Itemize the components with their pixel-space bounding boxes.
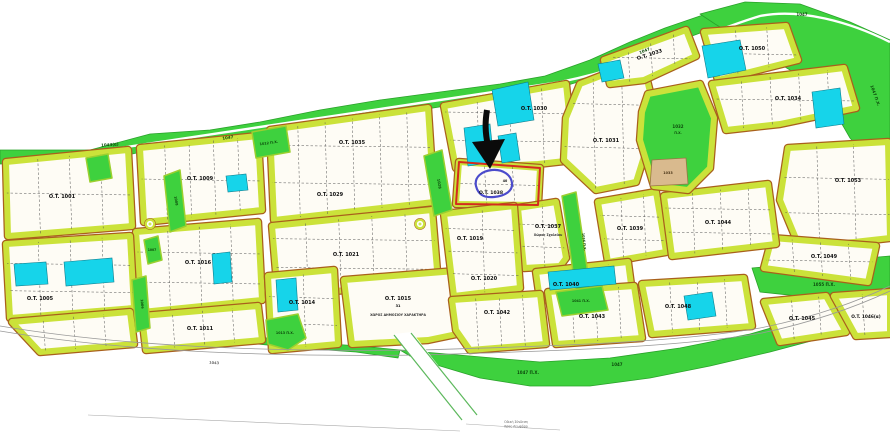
cyan-parcel bbox=[14, 262, 48, 286]
access-road-edge bbox=[394, 335, 462, 420]
map-label: 1033 bbox=[663, 171, 673, 175]
map-label: O.T. 1009 bbox=[187, 176, 214, 182]
map-label: 31 bbox=[396, 304, 401, 308]
map-label: O.T. 1050 bbox=[739, 46, 766, 52]
map-block-b-1019 bbox=[444, 206, 520, 296]
map-label: O.T. 1040 bbox=[553, 282, 580, 288]
map-label: 1047 Π.Χ. bbox=[517, 370, 539, 375]
map-label: O.T. 1042 bbox=[484, 310, 511, 316]
map-label: 1007 bbox=[148, 248, 157, 252]
cyan-parcel bbox=[498, 133, 520, 163]
map-label: O.T. 1048 bbox=[665, 304, 692, 310]
cyan-parcel bbox=[812, 88, 844, 128]
map-label: O.T. 1014 bbox=[289, 300, 316, 306]
map-block-b-row4 bbox=[12, 312, 134, 352]
map-label: 1041 Π.Χ. bbox=[572, 299, 590, 303]
map-label: 1013 Π.Χ. bbox=[276, 331, 294, 335]
map-label: O.T. 1043 bbox=[579, 314, 606, 320]
cyan-parcel bbox=[212, 252, 232, 284]
map-label: O.T. 1011 bbox=[187, 326, 214, 332]
map-label: O.T. 1001 bbox=[49, 194, 76, 200]
cadastral-map: O.T. 1001O.T. 1009O.T. 1035O.T. 1029O.T.… bbox=[0, 0, 890, 440]
map-label: Χώρος Σχολείου bbox=[534, 233, 563, 237]
map-label: O.T. 1046(α) bbox=[851, 314, 880, 320]
map-label: Π.Χ. bbox=[674, 131, 682, 135]
map-label: O.T. 1053 bbox=[835, 178, 862, 184]
cyan-parcel bbox=[64, 258, 114, 286]
map-label: 1047 bbox=[611, 362, 622, 367]
roundabout-center bbox=[149, 223, 152, 226]
map-label: O.T. 1030 bbox=[521, 106, 548, 112]
map-label: O.T. 1039 bbox=[617, 226, 644, 232]
map-label: O.T. 1037 bbox=[535, 224, 562, 230]
map-label: 1047 bbox=[796, 12, 807, 17]
map-label: O.T. 1045 bbox=[789, 316, 816, 322]
map-label: 40 bbox=[503, 179, 508, 183]
map-label: O.T. 1049 bbox=[811, 254, 838, 260]
map-label: 1055 Π.Χ. bbox=[813, 282, 835, 287]
map-label: O.T. 1016 bbox=[185, 260, 212, 266]
cyan-parcel bbox=[492, 82, 534, 126]
road-note: Οδική Σύνδεση bbox=[504, 420, 528, 424]
map-label: 1043 bbox=[209, 361, 220, 366]
roundabout-center bbox=[419, 223, 422, 226]
map-block-b-1053 bbox=[780, 142, 890, 248]
map-canvas: O.T. 1001O.T. 1009O.T. 1035O.T. 1029O.T.… bbox=[0, 0, 890, 440]
map-label: O.T. 1020 bbox=[471, 276, 498, 282]
map-label: O.T. 1035 bbox=[339, 140, 366, 146]
road-note: προς Λεωφόρο bbox=[504, 425, 527, 429]
survey-line bbox=[88, 415, 460, 431]
cyan-parcel bbox=[598, 60, 624, 82]
map-label: O.T. 1034 bbox=[775, 96, 802, 102]
map-block-b-1038 bbox=[456, 162, 540, 205]
cyan-parcel bbox=[276, 278, 298, 312]
map-label: O.T. 1031 bbox=[593, 138, 620, 144]
map-label: O.T. 1021 bbox=[333, 252, 360, 258]
map-block-b-1016 bbox=[136, 222, 262, 312]
map-label: O.T. 1015 bbox=[385, 296, 412, 302]
map-label: ΧΩΡΟΣ ΔΗΜΟΣΙΟΥ ΧΑΡΑΚΤΗΡΑ bbox=[370, 313, 426, 317]
map-label: O.T. 1029 bbox=[317, 192, 344, 198]
map-label: O.T. 1005 bbox=[27, 296, 54, 302]
map-label: O.T. 1019 bbox=[457, 236, 484, 242]
map-block-b-1042 bbox=[452, 294, 546, 350]
green-area-parcel-left-square bbox=[86, 154, 112, 182]
cyan-parcel bbox=[226, 174, 248, 192]
map-label: O.T. 1038 bbox=[479, 190, 503, 196]
map-label: 1032 bbox=[672, 124, 683, 129]
map-block-b-1001 bbox=[6, 150, 132, 236]
map-label: O.T. 1044 bbox=[705, 220, 732, 226]
